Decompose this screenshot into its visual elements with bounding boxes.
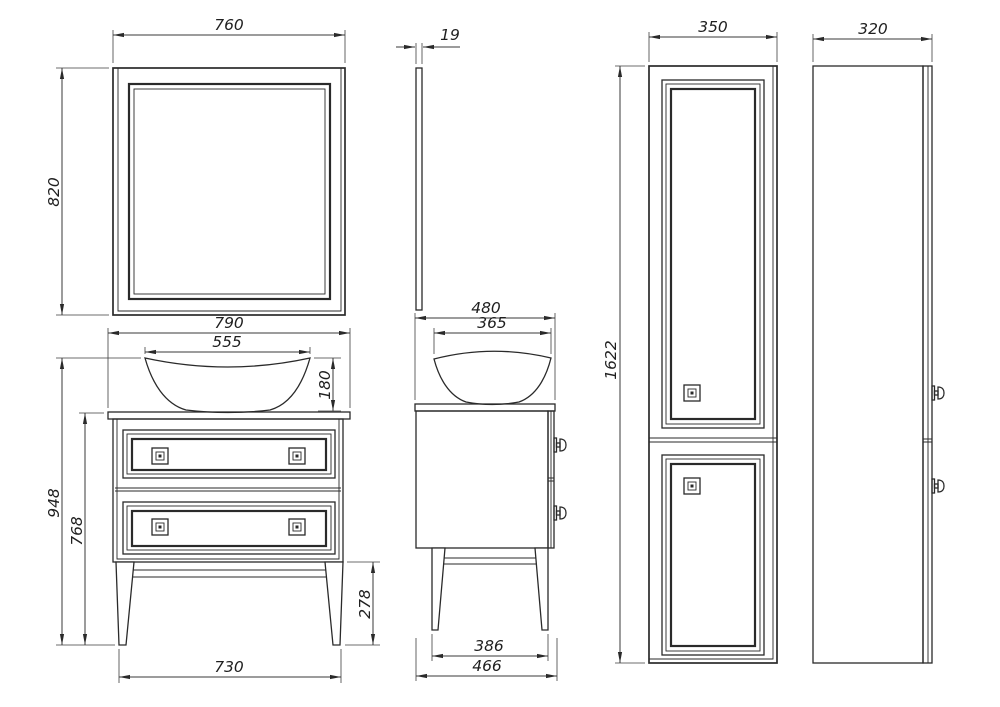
side-knob bbox=[932, 386, 944, 400]
tall-cabinet-side-dimensions: 320 bbox=[813, 20, 932, 62]
drawer-knob bbox=[289, 519, 305, 535]
mirror-outer-frame bbox=[113, 68, 345, 315]
mirror-glass-edge bbox=[134, 89, 325, 294]
tall-cabinet-front-dimensions: 350 1622 bbox=[602, 18, 777, 663]
vessel-basin-front bbox=[145, 358, 310, 413]
vanity-drawer-top bbox=[123, 430, 335, 478]
vanity-drawer-bottom bbox=[123, 502, 335, 554]
door-knob bbox=[684, 478, 700, 494]
vanity-cabinet-body-side bbox=[416, 411, 548, 548]
drawer-knob bbox=[152, 448, 168, 464]
vanity-cabinet-body-front bbox=[113, 419, 343, 562]
vanity-front-view: 790 555 180 948 768 278 730 bbox=[45, 314, 380, 683]
vanity-drawer-gap bbox=[115, 488, 341, 491]
dim-vanity-total-depth: 466 bbox=[472, 657, 502, 675]
side-knob bbox=[554, 438, 566, 452]
tall-cabinet-door-edge bbox=[923, 66, 932, 663]
side-knob bbox=[932, 479, 944, 493]
dim-tall-cabinet-depth: 320 bbox=[858, 20, 888, 38]
tall-cabinet-carcass-front bbox=[649, 66, 777, 663]
drawer-knob bbox=[289, 448, 305, 464]
vessel-basin-side bbox=[434, 351, 551, 404]
technical-drawing-page: 760 820 19 bbox=[0, 0, 1000, 707]
dim-feet-span-depth: 386 bbox=[474, 637, 504, 655]
mirror-side-panel bbox=[416, 68, 422, 310]
vanity-side-view: 480 365 386 466 bbox=[415, 299, 566, 681]
furniture-dimension-drawing: 760 820 19 bbox=[0, 0, 1000, 707]
dim-vanity-countertop-width: 790 bbox=[214, 314, 244, 332]
dim-mirror-height: 820 bbox=[45, 177, 63, 207]
dim-leg-height: 278 bbox=[356, 589, 374, 619]
vanity-leg-side-right bbox=[535, 548, 548, 630]
dim-basin-width: 555 bbox=[212, 333, 242, 351]
mirror-inner-frame bbox=[129, 84, 330, 299]
mirror-frame-bevel bbox=[118, 68, 341, 311]
dim-basin-height: 180 bbox=[316, 370, 334, 400]
tall-cabinet-door-upper bbox=[662, 80, 764, 428]
tall-cabinet-door-edge-split bbox=[923, 66, 932, 663]
vanity-leg-rail-front bbox=[133, 570, 326, 577]
vanity-drawer-edge-split bbox=[548, 411, 554, 548]
dim-mirror-thickness: 19 bbox=[440, 26, 460, 44]
dim-basin-depth: 365 bbox=[477, 314, 507, 332]
tall-cabinet-door-divider bbox=[649, 438, 777, 442]
tall-cabinet-front-view: 350 1622 bbox=[602, 18, 777, 663]
tall-cabinet-side-view: 320 bbox=[813, 20, 944, 663]
drawer-knob bbox=[152, 519, 168, 535]
vanity-leg-front-right bbox=[325, 562, 343, 645]
dim-vanity-countertop-height: 768 bbox=[68, 516, 86, 546]
door-knob bbox=[684, 385, 700, 401]
mirror-side-dimensions: 19 bbox=[396, 26, 460, 64]
mirror-front-dimensions: 760 820 bbox=[45, 16, 345, 315]
vanity-leg-front-left bbox=[116, 562, 134, 645]
mirror-side-view: 19 bbox=[396, 26, 460, 310]
side-knob bbox=[554, 506, 566, 520]
dim-vanity-total-height: 948 bbox=[45, 488, 63, 518]
mirror-front-view: 760 820 bbox=[45, 16, 345, 315]
dim-mirror-width: 760 bbox=[214, 16, 244, 34]
vanity-leg-side-left bbox=[432, 548, 445, 630]
dim-tall-cabinet-width: 350 bbox=[698, 18, 728, 36]
vanity-countertop-side bbox=[415, 404, 555, 411]
vanity-leg-rail-side bbox=[444, 558, 536, 564]
dim-feet-span-width: 730 bbox=[214, 658, 244, 676]
tall-cabinet-carcass-side bbox=[813, 66, 923, 663]
dim-tall-cabinet-height: 1622 bbox=[602, 340, 620, 379]
tall-cabinet-door-lower bbox=[662, 455, 764, 655]
